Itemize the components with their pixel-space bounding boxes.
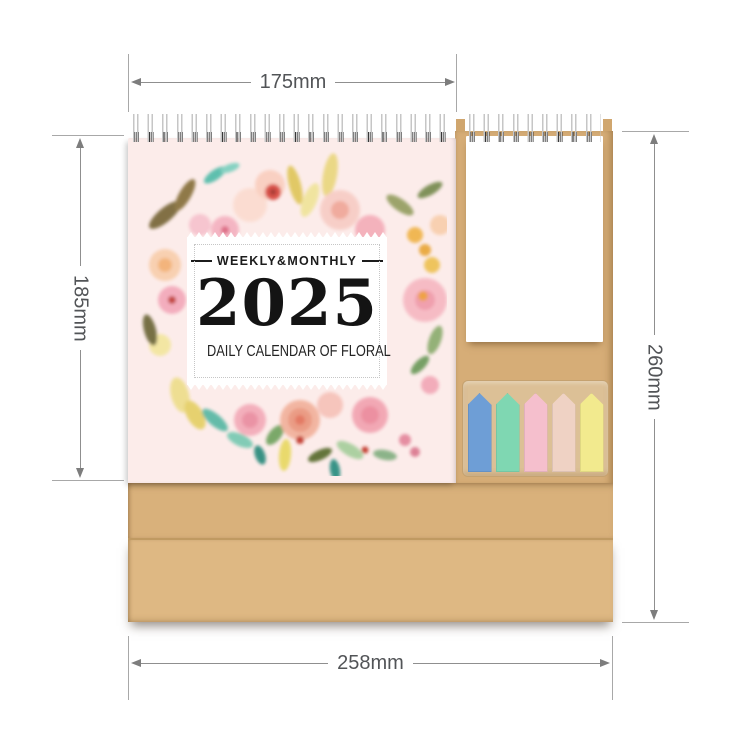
wire-binding-left [133,114,450,142]
dim-tick [622,131,689,132]
stand-base-lower [128,538,613,622]
arrow-left-icon [131,659,141,667]
arrow-right-icon [600,659,610,667]
dimension-total-width: 258mm [131,655,610,671]
arrow-right-icon [445,78,455,86]
arrow-down-icon [76,468,84,478]
index-tab [496,393,520,472]
dim-tick [622,622,689,623]
sticky-tabs-holder [462,380,609,477]
index-tab [524,393,548,472]
tagline-dash-left [191,260,212,262]
calendar-cover-page: WEEKLY&MONTHLY 2025 DAILY CALENDAR OF FL… [128,138,456,483]
index-tab [468,393,492,472]
index-tab [552,393,576,472]
blank-notepad [466,136,603,342]
arrow-up-icon [76,138,84,148]
dim-tick [128,636,129,700]
arrow-up-icon [650,134,658,144]
calendar-dimension-diagram: WEEKLY&MONTHLY 2025 DAILY CALENDAR OF FL… [0,0,750,750]
dim-tick [52,480,124,481]
dim-tick [612,636,613,700]
arrow-down-icon [650,610,658,620]
scallop-edge-top [187,232,387,238]
dim-tick [52,135,124,136]
dimension-top-width: 175mm [131,74,455,90]
scallop-edge-bottom [187,384,387,390]
arrow-left-icon [131,78,141,86]
tagline-dash-right [362,260,383,262]
dimension-total-height: 260mm [645,134,663,620]
cover-title-box: WEEKLY&MONTHLY 2025 DAILY CALENDAR OF FL… [187,237,387,385]
dimension-label: 185mm [69,266,92,351]
index-tabs-row [467,393,604,472]
cover-subtitle: DAILY CALENDAR OF FLORAL [207,343,367,361]
dim-tick [456,54,457,112]
wire-binding-right [469,114,601,142]
cover-year: 2025 [187,272,387,336]
dimension-label: 260mm [643,335,666,420]
index-tab [580,393,604,472]
dimension-label: 258mm [328,652,413,675]
dimension-label: 175mm [251,71,336,94]
dimension-page-height: 185mm [71,138,89,478]
dim-tick [128,54,129,112]
stand-base-upper [128,483,613,538]
